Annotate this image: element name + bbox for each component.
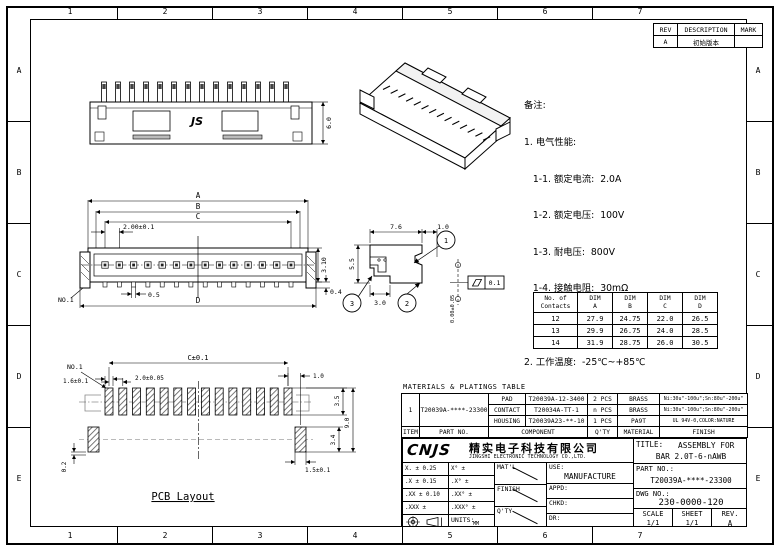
- zone-row-left: C: [14, 270, 24, 279]
- scale-label: SCALE: [634, 510, 672, 518]
- dimtab-header-d: DIMD: [683, 293, 718, 313]
- zone-tick: [212, 527, 213, 543]
- iso-body: [360, 63, 510, 169]
- dim-pad-label: 0.5: [148, 291, 160, 299]
- chkd-label: CHKD:: [549, 500, 568, 507]
- zone-tick: [497, 527, 498, 543]
- top-view-pins: [102, 82, 289, 102]
- company-name-cn: 精实电子科技有限公司: [469, 440, 599, 456]
- materials-qty: n PCS: [588, 405, 618, 416]
- note-line: 1-1. 额定电流: 2.0A: [524, 174, 760, 186]
- dwg-no-value: 230-0000-120: [634, 498, 747, 508]
- pcb-dim-extensions: [71, 367, 356, 465]
- pcb-anchor-pad: [88, 427, 99, 452]
- side-profile: [370, 245, 422, 283]
- use-label: USE:: [549, 464, 564, 471]
- pcb-dim-90: 9.0: [344, 417, 351, 428]
- title-line1: ASSEMBLY FOR: [678, 441, 734, 450]
- dimtab-row: 13 29.9 26.75 24.0 28.5: [534, 325, 718, 337]
- dim-body-height: 6.0: [325, 117, 333, 129]
- materials-qty: 2 PCS: [588, 394, 618, 405]
- revision-table: REV DESCRIPTION MARK A 初始版本: [653, 23, 763, 48]
- zone-col-bottom: 1: [64, 531, 76, 540]
- zone-col-top: 1: [64, 7, 76, 16]
- front-view-drawing: A B C 2.00±0.1 D 3.10 0.4 0.5 NO.1: [58, 186, 358, 316]
- finish-cell: FINISH: [494, 484, 547, 507]
- dimtab-header-c: DIMC: [648, 293, 683, 313]
- company-band: CNJS 精实电子科技有限公司 JINGSHI ELECTRONIC TECHN…: [402, 438, 634, 463]
- tolerance-angular: .XXX° ±: [448, 501, 495, 515]
- revision-rev: A: [654, 36, 678, 48]
- dim-tab-label: 1.0: [437, 223, 449, 231]
- zone-col-top: 4: [349, 7, 361, 16]
- zone-tick: [6, 325, 30, 326]
- rev-label: REV.: [712, 510, 747, 518]
- dimtab-cell: 26.5: [683, 313, 718, 325]
- dimtab-header-a: DIMA: [578, 293, 613, 313]
- zone-col-bottom: 3: [254, 531, 266, 540]
- title-label: TITLE:: [636, 440, 663, 449]
- materials-finish: Ni:30u"-100u";Sn:80u"-200u": [660, 405, 748, 416]
- top-view-drawing: JS 6.0: [85, 75, 335, 170]
- rev-cell: REV. A: [711, 508, 747, 527]
- part-no-value: T20039A-****-23300: [634, 476, 747, 485]
- sheet-cell: SHEET 1/1: [672, 508, 712, 527]
- zone-col-top: 2: [159, 7, 171, 16]
- sheet-value: 1/1: [673, 519, 711, 527]
- scale-value: 1/1: [634, 519, 672, 527]
- tolerance-angular: X° ±: [448, 462, 495, 476]
- dim-width-label: 7.6: [390, 223, 402, 231]
- pcb-caption: PCB Layout: [151, 491, 214, 503]
- slash-mark: [512, 467, 537, 481]
- dim-height-label: 3.10: [320, 257, 328, 273]
- revision-mark: [735, 36, 763, 48]
- matl-cell: MAT'L: [494, 462, 547, 485]
- dimtab-cell: 28.75: [613, 337, 648, 349]
- materials-header-component: COMPONENT: [489, 427, 588, 438]
- pcb-dim-35: 3.5: [334, 395, 341, 406]
- zone-row-left: B: [14, 168, 24, 177]
- part-no-cell: PART NO.: T20039A-****-23300: [633, 463, 747, 489]
- note-line: 1-2. 额定电压: 100V: [524, 210, 760, 222]
- dimtab-cell: 24.75: [613, 313, 648, 325]
- materials-row: 1 T20039A-****-23300 PAD T20039A-12-3400…: [402, 394, 748, 405]
- qty-cell: Q'TY: [494, 506, 547, 527]
- use-value: MANUFACTURE: [547, 472, 633, 481]
- materials-header-qty: Q'TY: [588, 427, 618, 438]
- zone-tick: [6, 427, 30, 428]
- dimtab-row: 12 27.9 24.75 22.0 26.5: [534, 313, 718, 325]
- rev-value: A: [712, 519, 747, 527]
- dwg-no-cell: DWG NO.: 230-0000-120: [633, 488, 747, 509]
- tolerance-angular: .X° ±: [448, 475, 495, 489]
- dimtab-cell: 31.9: [578, 337, 613, 349]
- materials-header-item: ITEM: [402, 427, 420, 438]
- materials-header-finish: FINISH: [660, 427, 748, 438]
- pcb-dim-pad-width: 1.6±0.1: [63, 378, 89, 385]
- pcb-dim-pitch: 2.0±0.05: [135, 375, 164, 382]
- housing-marking: JS: [189, 115, 203, 128]
- zone-col-bottom: 2: [159, 531, 171, 540]
- zone-tick: [402, 527, 403, 543]
- note-line: 1-3. 耐电压: 800V: [524, 247, 760, 259]
- dimtab-cell: 30.5: [683, 337, 718, 349]
- units-label: UNITS:: [451, 516, 474, 524]
- zone-tick: [307, 6, 308, 19]
- projection-angle-icon: [405, 516, 448, 527]
- zone-row-left: A: [14, 66, 24, 75]
- dim-depth-label: 3.0: [374, 299, 386, 307]
- materials-header-material: MATERIAL: [618, 427, 660, 438]
- dim-c-label: C: [196, 212, 201, 221]
- pcb-dim-c: C±0.1: [187, 354, 208, 362]
- balloon-2: 2: [405, 300, 409, 308]
- tolerance-linear: X. ± 0.25: [402, 462, 449, 476]
- zone-tick: [117, 527, 118, 543]
- zone-tick: [117, 6, 118, 19]
- note-line: 备注:: [524, 100, 760, 112]
- title-block: CNJS 精实电子科技有限公司 JINGSHI ELECTRONIC TECHN…: [401, 437, 747, 527]
- use-cell: USE: MANUFACTURE: [546, 462, 634, 484]
- engineering-drawing-sheet: 1 2 3 4 5 6 7 1 2 3 4 5 6 7 A B C D E A …: [0, 0, 780, 551]
- dimtab-cell: 27.9: [578, 313, 613, 325]
- zone-tick: [592, 6, 593, 19]
- materials-material: PA9T: [618, 416, 660, 427]
- tolerance-linear: .XX ± 0.10: [402, 488, 449, 502]
- revision-description: 初始版本: [678, 36, 735, 48]
- materials-component: CONTACT: [489, 405, 526, 416]
- pcb-layout-drawing: C±0.1 NO.1 1.6±0.1 2.0±0.05 1.0 3.5 9.0 …: [55, 345, 365, 515]
- appd-cell: APPD:: [546, 483, 634, 499]
- zone-tick: [6, 121, 30, 122]
- note-line: 2. 工作温度: -25℃~+85℃: [524, 357, 760, 369]
- side-view-drawing: 7.6 1.0 5.5 3.0 1 2 3: [338, 213, 525, 330]
- company-name-en: JINGSHI ELECTRONIC TECHNOLOGY CO.,LTD.: [469, 455, 586, 460]
- dr-cell: DR:: [546, 513, 634, 527]
- materials-finish: Ni:30u"-100u";Sn:80u"-200u": [660, 394, 748, 405]
- dimtab-cell: 26.75: [613, 325, 648, 337]
- pcb-dim-offset: 1.0: [313, 373, 324, 380]
- zone-row-left: D: [14, 372, 24, 381]
- materials-component-part: T20039A-12-3400: [526, 394, 588, 405]
- zone-col-top: 6: [539, 7, 551, 16]
- revision-header-description: DESCRIPTION: [678, 24, 735, 36]
- zone-col-bottom: 5: [444, 531, 456, 540]
- zone-tick: [212, 6, 213, 19]
- materials-table-title: MATERIALS & PLATINGS TABLE: [403, 383, 526, 391]
- zone-tick: [402, 6, 403, 19]
- materials-material: BRASS: [618, 394, 660, 405]
- pcb-dim-lines: [74, 363, 353, 464]
- dimtab-cell: 24.0: [648, 325, 683, 337]
- projection-symbol-cell: [402, 514, 449, 527]
- zone-tick: [6, 223, 30, 224]
- dimtab-cell: 14: [534, 337, 578, 349]
- balloon-3: 3: [350, 300, 354, 308]
- zone-col-top: 3: [254, 7, 266, 16]
- materials-component: PAD: [489, 394, 526, 405]
- materials-part-no: T20039A-****-23300: [420, 394, 489, 427]
- title-cell: TITLE: ASSEMBLY FOR BAR 2.0T-6-nAWB: [633, 438, 747, 464]
- units-value: MM: [473, 521, 479, 527]
- zone-col-top: 5: [444, 7, 456, 16]
- revision-header-mark: MARK: [735, 24, 763, 36]
- coplanarity-label: 0.00±0.05: [450, 295, 456, 323]
- materials-header-row: ITEM PART NO. COMPONENT Q'TY MATERIAL FI…: [402, 427, 748, 438]
- zone-row-right: A: [753, 66, 763, 75]
- pcb-anchor-pad: [295, 427, 306, 452]
- dimtab-cell: 22.0: [648, 313, 683, 325]
- materials-item: 1: [402, 394, 420, 427]
- tolerance-linear: .XXX ±: [402, 501, 449, 515]
- sheet-label: SHEET: [673, 510, 711, 518]
- zone-col-bottom: 4: [349, 531, 361, 540]
- pcb-dim-02: 0.2: [61, 461, 68, 472]
- dimtab-cell: 13: [534, 325, 578, 337]
- isometric-view-drawing: [350, 48, 520, 183]
- revision-header-rev: REV: [654, 24, 678, 36]
- pcb-pads: [88, 388, 306, 452]
- materials-qty: 1 PCS: [588, 416, 618, 427]
- tolerance-angular: .XX° ±: [448, 488, 495, 502]
- dr-label: DR:: [549, 515, 560, 522]
- pcb-pin1-label: NO.1: [67, 363, 83, 371]
- slash-mark: [512, 489, 537, 503]
- dim-height-label: 5.5: [348, 258, 356, 270]
- materials-header-part: PART NO.: [420, 427, 489, 438]
- dimtab-cell: 26.0: [648, 337, 683, 349]
- title-line2: BAR 2.0T-6-nAWB: [634, 452, 747, 461]
- units-cell: UNITS: MM: [448, 514, 495, 527]
- pcb-dim-34: 3.4: [330, 434, 337, 445]
- zone-tick: [497, 6, 498, 19]
- materials-component-part: T20034A-TT-1: [526, 405, 588, 416]
- materials-component-part: T20039A23-**-10: [526, 416, 588, 427]
- dimtab-row: 14 31.9 28.75 26.0 30.5: [534, 337, 718, 349]
- dimtab-cell: 29.9: [578, 325, 613, 337]
- materials-table: 1 T20039A-****-23300 PAD T20039A-12-3400…: [401, 393, 748, 438]
- flatness-value: 0.1: [489, 279, 501, 287]
- dwg-no-label: DWG NO.:: [636, 490, 670, 498]
- materials-material: BRASS: [618, 405, 660, 416]
- dim-pitch-label: 2.00±0.1: [123, 223, 154, 231]
- scale-cell: SCALE 1/1: [633, 508, 673, 527]
- dimtab-cell: 12: [534, 313, 578, 325]
- zone-tick: [307, 527, 308, 543]
- pin1-label: NO.1: [58, 296, 74, 304]
- appd-label: APPD:: [549, 485, 568, 492]
- dim-a-label: A: [196, 191, 201, 200]
- note-line: 1. 电气性能:: [524, 137, 760, 149]
- tolerance-linear: .X ± 0.15: [402, 475, 449, 489]
- dimtab-header-contacts: No. ofContacts: [534, 293, 578, 313]
- materials-finish: UL 94V-0,COLOR:NATURE: [660, 416, 748, 427]
- chkd-cell: CHKD:: [546, 498, 634, 514]
- zone-row-left: E: [14, 474, 24, 483]
- qty-label: Q'TY: [497, 508, 512, 515]
- pcb-dim-tab: 1.5±0.1: [305, 467, 331, 474]
- dimtab-header-b: DIMB: [613, 293, 648, 313]
- balloon-1: 1: [444, 237, 448, 245]
- part-no-label: PART NO.:: [636, 465, 674, 473]
- materials-component: HOUSING: [489, 416, 526, 427]
- dim-b-label: B: [196, 202, 201, 211]
- zone-col-top: 7: [634, 7, 646, 16]
- slash-mark: [512, 511, 537, 525]
- dimtab-cell: 28.5: [683, 325, 718, 337]
- company-logo: CNJS: [406, 441, 452, 459]
- dimension-table: No. ofContacts DIMA DIMB DIMC DIMD 12 27…: [533, 292, 718, 349]
